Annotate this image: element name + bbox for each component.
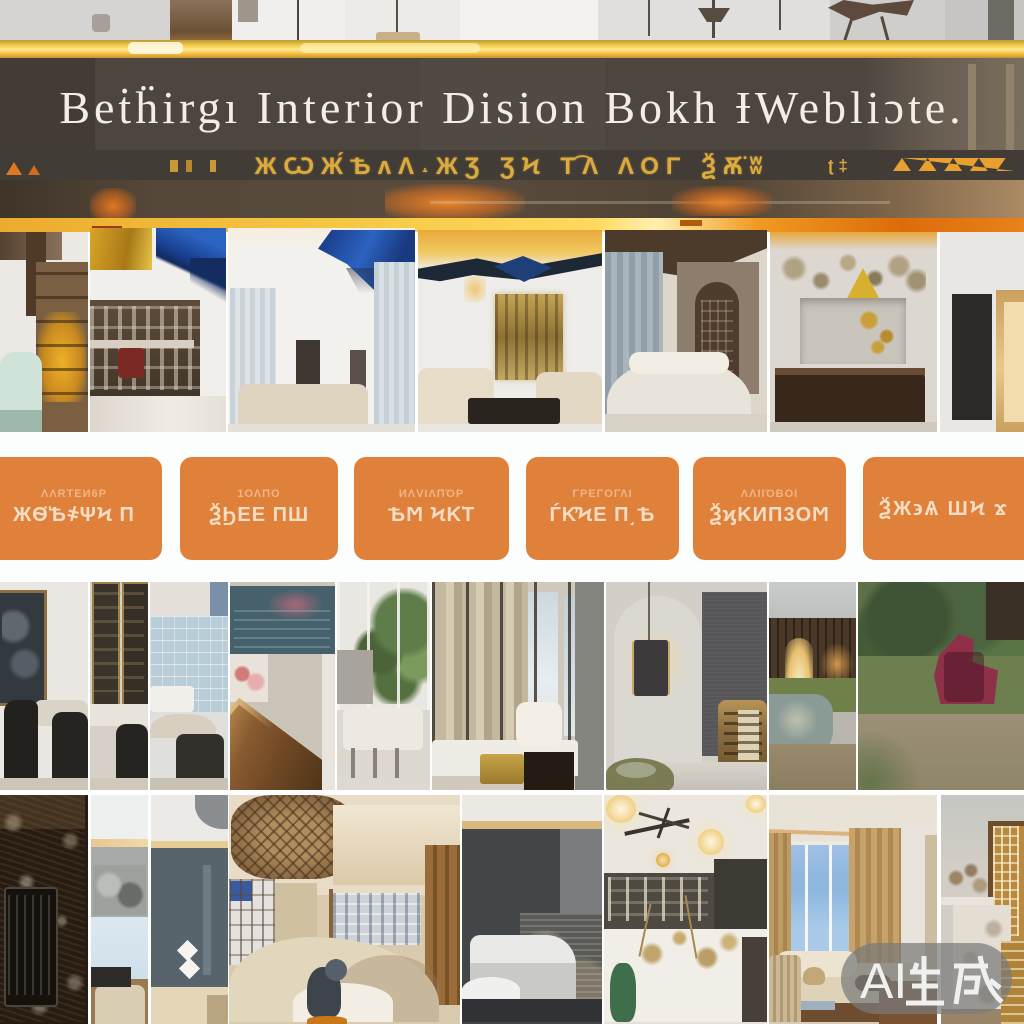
svg-text:AI: AI — [860, 953, 907, 1009]
